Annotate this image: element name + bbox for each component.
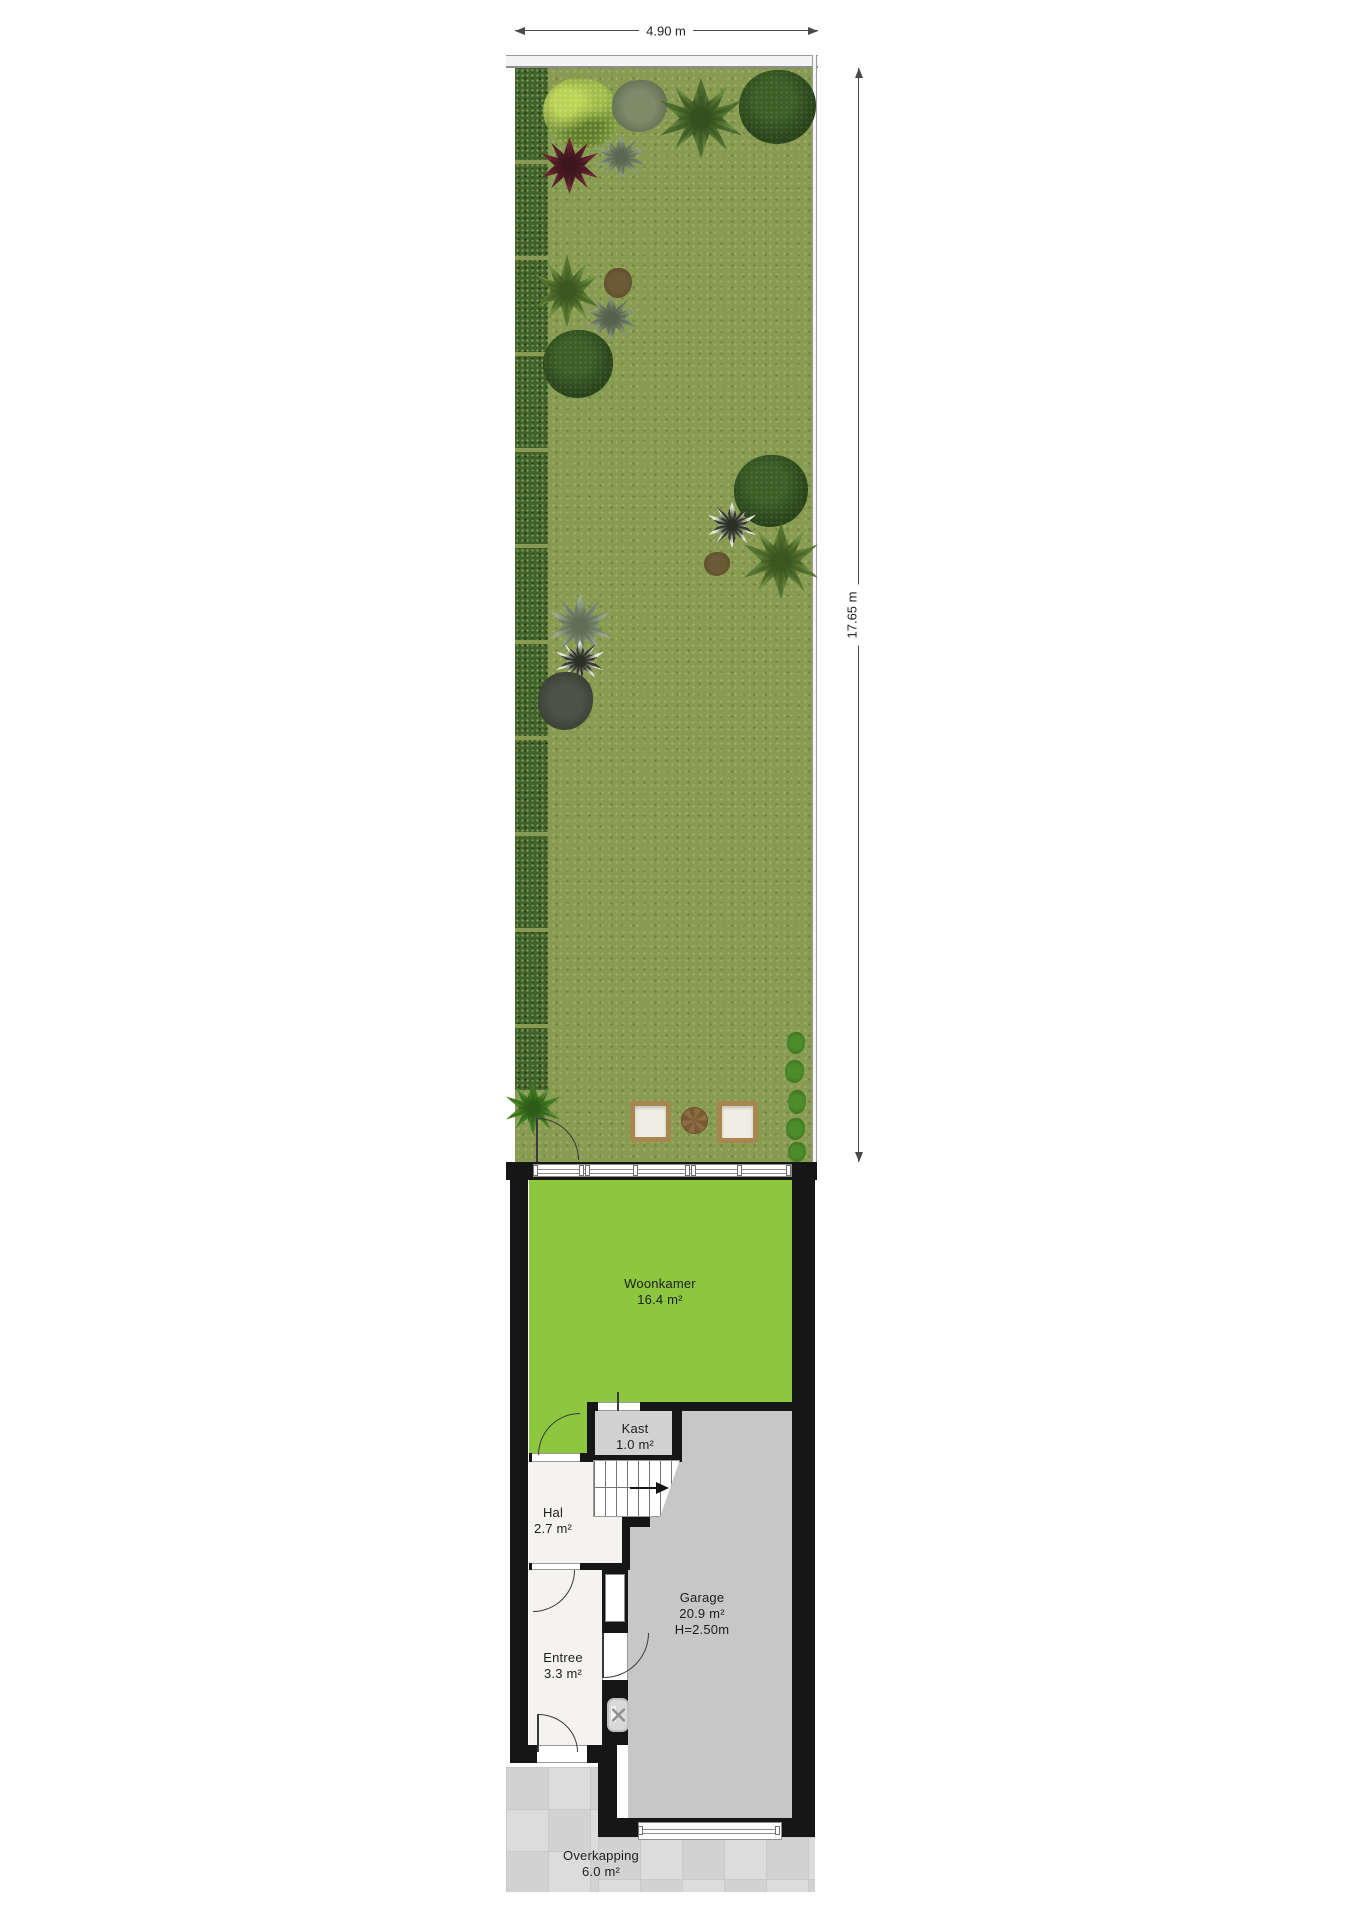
arrow-right-icon [808,27,818,35]
window-divider [579,1165,584,1176]
garage-door-end [638,1826,643,1835]
room-label-hal: Hal2.7 m² [534,1505,572,1537]
meter-cupboard [605,1574,625,1622]
window-divider [633,1165,638,1176]
dimension-depth-label: 17.65 m [845,585,860,646]
arrow-down-icon [855,1152,863,1162]
stairs-direction-arrow [656,1482,669,1494]
front-door-leaf [537,1714,539,1752]
wall [672,1402,682,1462]
arrow-left-icon [515,27,525,35]
kast-door-leaf [617,1392,619,1411]
window-divider [786,1165,791,1176]
garden-door-leaf [536,1118,538,1162]
window-divider [585,1165,590,1176]
room-label-woonkamer: Woonkamer16.4 m² [624,1276,696,1308]
floorplan-canvas: 4.90 m 17.65 m [0,0,1358,1920]
wall [587,1411,595,1455]
wall [792,1180,815,1837]
round-tree-icon [734,455,808,527]
bush-icon [543,78,619,148]
wall [598,1763,617,1837]
room-garage-floor [628,1517,682,1825]
lounge-chair [717,1101,758,1143]
garage-overhead-door [638,1822,782,1840]
dimension-width-label: 4.90 m [639,24,693,39]
fence-top [506,55,818,68]
window-divider [533,1165,538,1176]
window-divider [691,1165,696,1176]
round-tree-icon [739,70,816,144]
room-label-entree: Entree3.3 m² [543,1650,583,1682]
kast-door-opening [598,1402,640,1411]
hal-door-opening [532,1563,580,1570]
room-label-garage: Garage20.9 m²H=2.50m [675,1590,730,1638]
room-label-kast: Kast1.0 m² [616,1421,654,1453]
sliding-door-window [533,1164,792,1177]
stairs-direction-arrow [630,1487,656,1489]
window-divider [685,1165,690,1176]
boiler-cross-icon [612,1709,625,1722]
garden-table [681,1107,708,1134]
round-bush-icon [543,330,613,398]
wall [510,1180,528,1763]
fence-right [812,55,817,1162]
garage-door-leaf [602,1633,604,1678]
room-label-overkapping: Overkapping6.0 m² [563,1848,639,1880]
lounge-chair [630,1101,671,1142]
hedge [515,68,548,1090]
arrow-up-icon [855,68,863,78]
window-divider [737,1165,742,1176]
boiler-unit [607,1698,629,1732]
garage-door-end [775,1826,780,1835]
